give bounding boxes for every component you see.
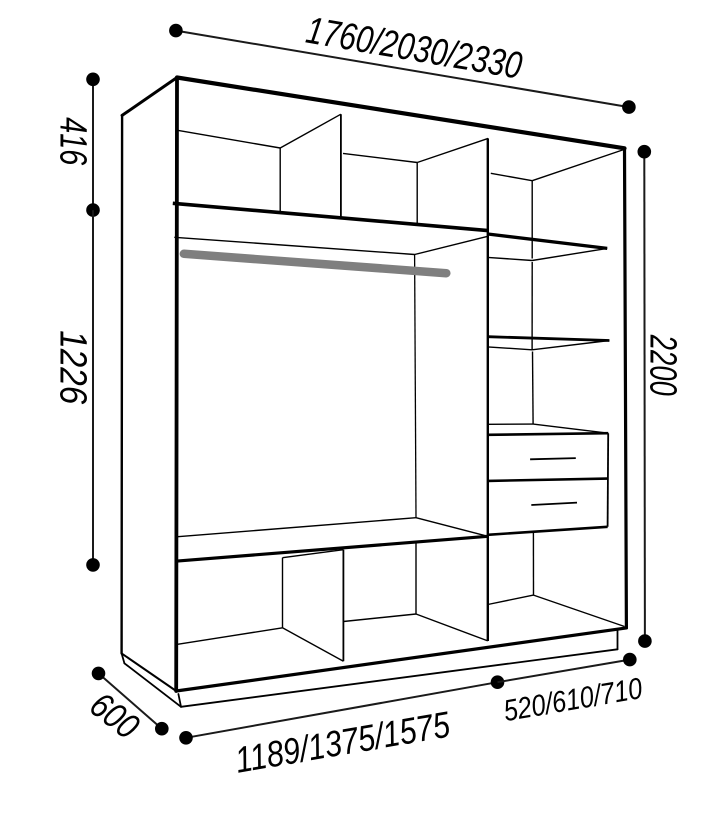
svg-text:1226: 1226 [51, 330, 93, 405]
svg-text:2200: 2200 [642, 334, 684, 396]
svg-text:416: 416 [51, 117, 93, 166]
